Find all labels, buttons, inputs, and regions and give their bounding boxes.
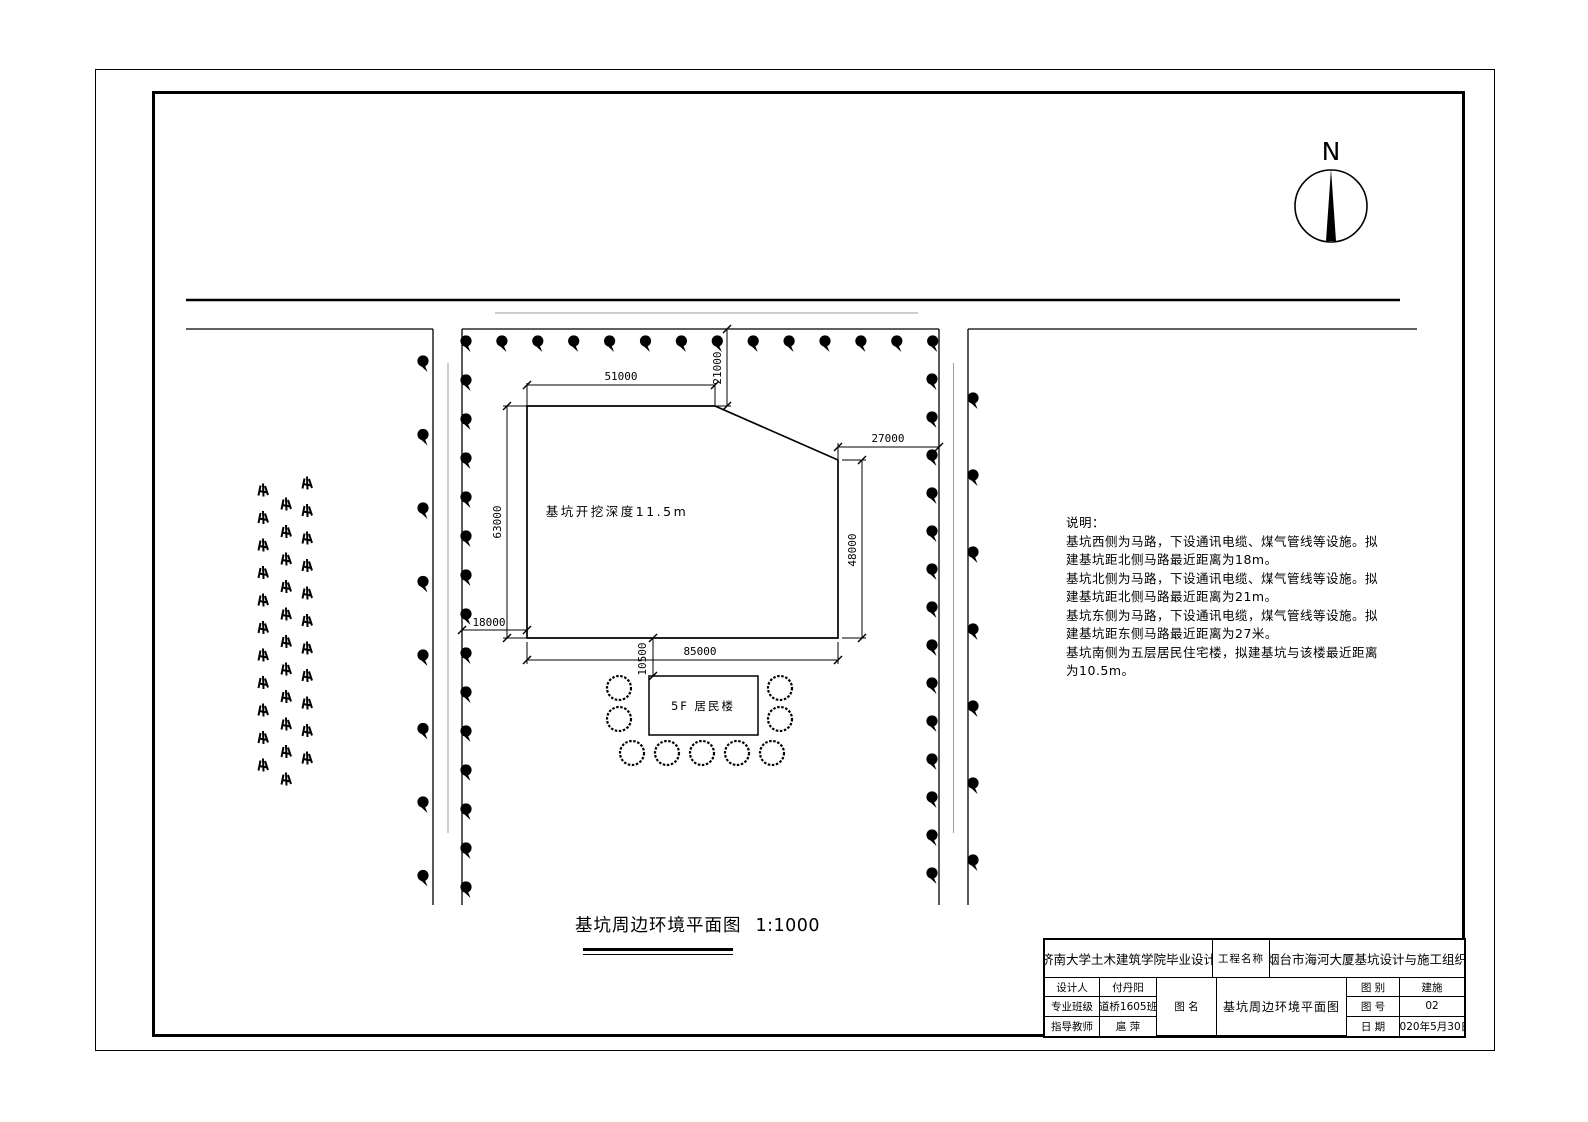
street-tree-icon [927,335,938,352]
street-tree-icon [926,449,937,466]
shrub-icon [259,621,269,634]
street-tree-icon [819,335,830,352]
shrub-grid [259,477,313,786]
caption-underline-thin [583,954,733,955]
dim-right-height: 48000 [846,533,859,566]
street-tree-icon [604,335,615,352]
street-tree-icon [784,335,795,352]
building-tree-circles [607,676,792,765]
dim-bottom-width: 85000 [683,645,716,658]
shrub-icon [282,525,292,538]
street-tree-icon [417,723,428,740]
street-tree-icon [676,335,687,352]
street-tree-icon [926,677,937,694]
street-tree-icon [496,335,507,352]
street-tree-icon [417,649,428,666]
excavation-pit-outline [527,406,838,638]
tree-circle-icon [607,676,631,700]
shrub-icon [259,731,269,744]
shrub-icon [282,553,292,566]
category-value: 建施 [1400,978,1464,997]
building-label: 5F 居民楼 [671,699,735,713]
street-tree-icon [417,576,428,593]
drawing-caption: 基坑周边环境平面图1:1000 [575,912,820,937]
shrub-icon [303,559,313,572]
notes-line: 建基坑距北侧马路最近距离为18m。 [1066,551,1406,570]
shrub-icon [303,504,313,517]
caption-scale: 1:1000 [756,916,821,936]
tree-circle-icon [655,741,679,765]
street-tree-icon [967,700,978,717]
north-arrow-needle-icon [1326,169,1336,241]
shrub-icon [259,511,269,524]
shrub-icon [282,608,292,621]
tree-circle-icon [620,741,644,765]
shrub-icon [282,690,292,703]
street-tree-icon [967,469,978,486]
north-label: N [1322,137,1341,166]
notes-line: 基坑南侧为五层居民住宅楼，拟建基坑与该楼最近距离 [1066,644,1406,663]
class-label: 专业班级 [1045,997,1100,1016]
title-block: 济南大学土木建筑学院毕业设计 工程名称 烟台市海河大厦基坑设计与施工组织 设计人… [1043,938,1466,1038]
street-tree-icon [967,777,978,794]
notes-line: 基坑东侧为马路，下设通讯电缆，煤气管线等设施。拟 [1066,607,1406,626]
advisor-value: 扈 萍 [1100,1017,1157,1036]
shrub-icon [282,663,292,676]
shrub-icon [282,745,292,758]
shrub-icon [303,642,313,655]
tree-circle-icon [768,676,792,700]
street-tree-icon [417,870,428,887]
street-tree-icon [855,335,866,352]
dimension-extension-lines [503,383,866,664]
class-value: 道桥1605班 [1100,997,1157,1016]
designer-label: 设计人 [1045,978,1100,997]
shrub-icon [259,704,269,717]
shrub-icon [303,587,313,600]
tree-circle-icon [607,707,631,731]
shrub-icon [282,718,292,731]
category-label: 图 别 [1347,978,1400,997]
street-tree-icon [712,335,723,352]
pit-depth-label: 基坑开挖深度11.5m [546,504,689,519]
street-tree-icon [967,546,978,563]
title-block-school: 济南大学土木建筑学院毕业设计 [1045,940,1213,978]
title-block-project-label: 工程名称 [1213,940,1270,978]
shrub-icon [259,759,269,772]
street-tree-icon [967,392,978,409]
shrub-icon [303,724,313,737]
number-label: 图 号 [1347,997,1400,1016]
dim-north-offset: 21000 [711,351,724,384]
shrub-icon [259,649,269,662]
shrub-icon [259,594,269,607]
dimension-lines [458,325,943,680]
street-tree-icon [926,373,937,390]
shrub-icon [303,669,313,682]
caption-title: 基坑周边环境平面图 [575,916,742,936]
shrub-icon [303,697,313,710]
shrub-icon [259,566,269,579]
drawing-name-label: 图 名 [1157,978,1217,1036]
street-tree-icon [926,829,937,846]
notes-line: 为10.5m。 [1066,662,1406,681]
drawing-name-value: 基坑周边环境平面图 [1217,978,1347,1036]
shrub-icon [282,635,292,648]
street-tree-icon [967,623,978,640]
north-arrow: N [1295,137,1367,242]
shrub-icon [303,614,313,627]
street-tree-icon [926,639,937,656]
dim-south-offset: 10500 [636,642,649,675]
dim-west-offset: 18000 [472,616,505,629]
street-tree-icon [532,335,543,352]
shrub-icon [259,539,269,552]
street-tree-icon [926,563,937,580]
street-tree-icon [926,753,937,770]
shrub-icon [303,532,313,545]
designer-value: 付丹阳 [1100,978,1157,997]
drawing-sheet: 基坑开挖深度11.5m 5F 居民楼 51000 21000 63000 180… [0,0,1588,1122]
street-tree-icon [417,502,428,519]
tree-circle-icon [690,741,714,765]
shrub-icon [282,498,292,511]
dim-east-offset: 27000 [871,432,904,445]
date-value: 2020年5月30日 [1400,1017,1464,1036]
street-tree-icon [417,429,428,446]
tree-circle-icon [768,707,792,731]
street-tree-icon [926,791,937,808]
shrub-icon [282,773,292,786]
number-value: 02 [1400,997,1464,1016]
street-tree-icon [967,854,978,871]
shrub-icon [259,484,269,497]
street-tree-icon [891,335,902,352]
notes-block: 说明： 基坑西侧为马路，下设通讯电缆、煤气管线等设施。拟 建基坑距北侧马路最近距… [1066,514,1406,681]
street-tree-icon [568,335,579,352]
advisor-label: 指导教师 [1045,1017,1100,1036]
notes-line: 基坑西侧为马路，下设通讯电缆、煤气管线等设施。拟 [1066,533,1406,552]
notes-line: 基坑北侧为马路，下设通讯电缆、煤气管线等设施。拟 [1066,570,1406,589]
notes-line: 说明： [1066,514,1406,533]
tree-circle-icon [760,741,784,765]
street-tree-icon [926,867,937,884]
shrub-icon [282,580,292,593]
street-tree-icon [748,335,759,352]
caption-underline-thick [583,948,733,951]
shrub-icon [303,477,313,490]
date-label: 日 期 [1347,1017,1400,1036]
dim-top-width: 51000 [604,370,637,383]
shrub-icon [259,676,269,689]
street-tree-icon [640,335,651,352]
title-block-project-name: 烟台市海河大厦基坑设计与施工组织 [1270,940,1464,978]
dim-left-height: 63000 [491,505,504,538]
tree-circle-icon [725,741,749,765]
shrub-icon [303,752,313,765]
street-tree-icon [417,355,428,372]
street-tree-icon [926,715,937,732]
street-tree-icon [926,525,937,542]
notes-line: 建基坑距北侧马路最近距离为21m。 [1066,588,1406,607]
street-tree-icon [926,411,937,428]
street-tree-icon [926,487,937,504]
notes-line: 建基坑距东侧马路最近距离为27米。 [1066,625,1406,644]
street-tree-icon [417,796,428,813]
street-tree-icon [926,601,937,618]
